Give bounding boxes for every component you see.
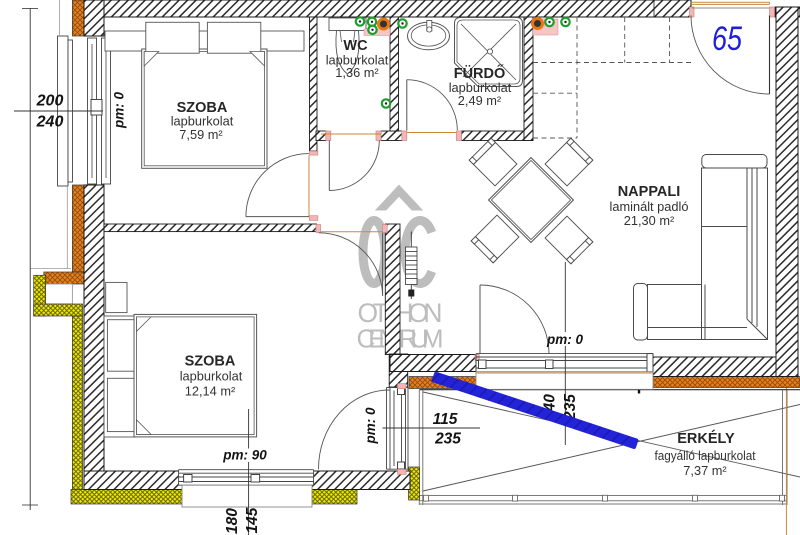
svg-text:pm: 0: pm: 0 [112,92,127,129]
svg-text:145: 145 [244,507,261,533]
svg-text:21,30 m²: 21,30 m² [624,213,675,228]
svg-text:2,49 m²: 2,49 m² [458,93,502,108]
svg-text:lapburkolat: lapburkolat [180,369,243,384]
svg-text:65: 65 [712,20,743,58]
svg-text:pm: 90: pm: 90 [222,448,267,463]
svg-text:fagyálló lapburkolat: fagyálló lapburkolat [655,448,756,463]
svg-text:SZOBA: SZOBA [185,354,236,370]
svg-text:laminált padló: laminált padló [610,199,689,214]
svg-text:115: 115 [433,411,458,428]
svg-text:7,37 m²: 7,37 m² [683,463,727,478]
svg-text:240: 240 [36,114,64,131]
svg-text:1,36 m²: 1,36 m² [335,65,379,80]
svg-text:7,59 m²: 7,59 m² [179,127,223,142]
svg-text:pm: 0: pm: 0 [546,332,583,347]
svg-text:200: 200 [36,93,64,110]
svg-text:pm: 0: pm: 0 [363,407,378,444]
svg-text:NAPPALI: NAPPALI [618,184,681,200]
svg-text:235: 235 [434,431,461,448]
svg-text:180: 180 [224,508,241,534]
svg-text:ERKÉLY: ERKÉLY [677,430,735,447]
svg-text:12,14 m²: 12,14 m² [185,384,236,399]
